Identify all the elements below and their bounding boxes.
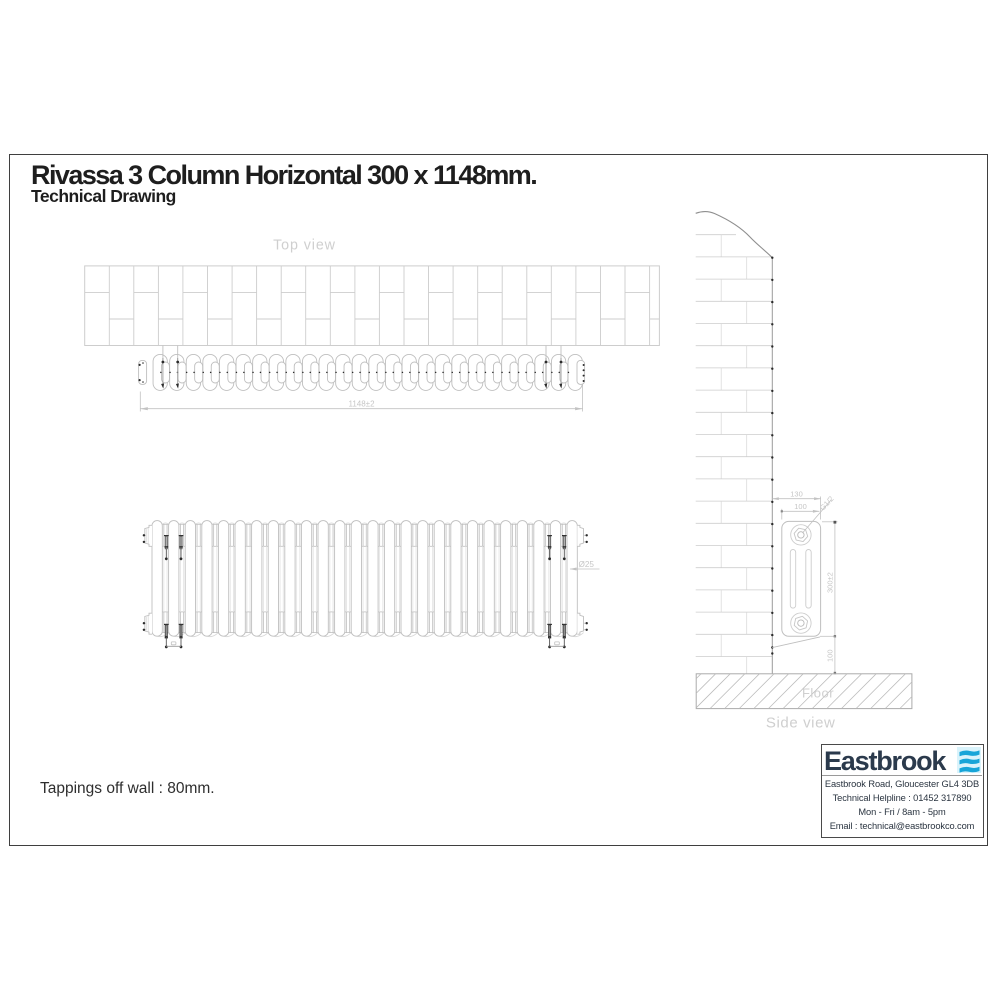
svg-text:300±2: 300±2 <box>826 572 835 593</box>
svg-text:100: 100 <box>794 502 807 511</box>
svg-text:Ø25: Ø25 <box>579 560 595 569</box>
svg-text:Top view: Top view <box>273 237 336 253</box>
svg-text:130: 130 <box>790 489 803 498</box>
svg-text:Floor: Floor <box>802 686 834 701</box>
svg-text:100: 100 <box>826 649 835 662</box>
svg-text:1148±2: 1148±2 <box>348 399 375 408</box>
svg-text:Side view: Side view <box>766 715 836 732</box>
